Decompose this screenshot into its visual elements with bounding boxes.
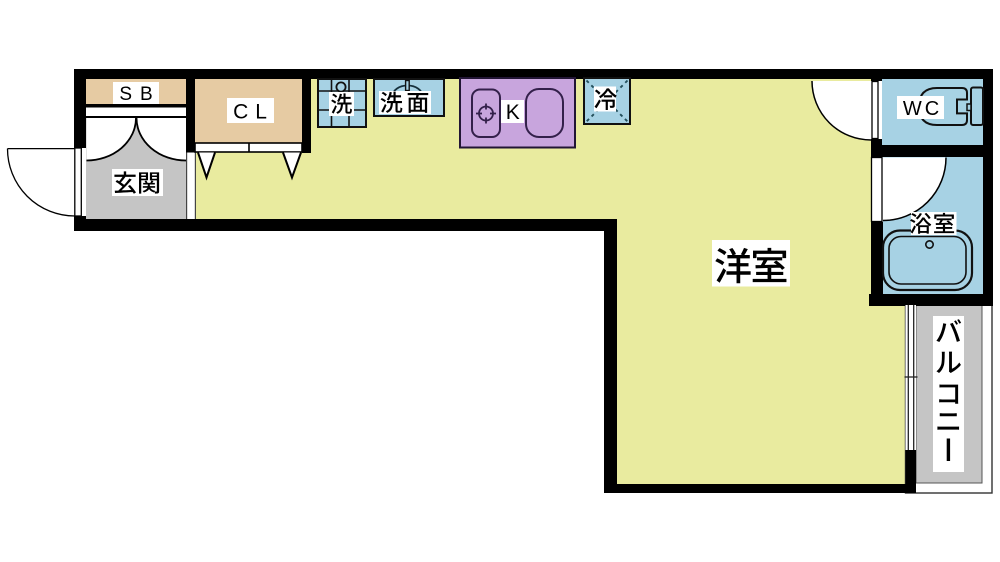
svg-text:SB: SB: [119, 84, 160, 105]
svg-text:K: K: [506, 101, 520, 124]
svg-text:WC: WC: [903, 98, 942, 120]
svg-text:CL: CL: [233, 101, 274, 124]
